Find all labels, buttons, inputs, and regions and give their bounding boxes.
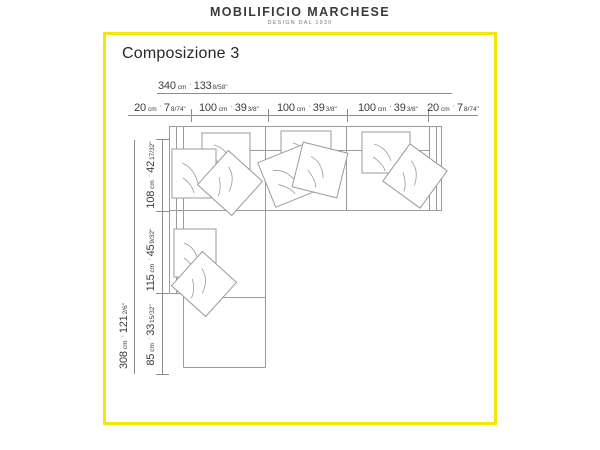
dim-total-depth: 308cm·1212/6" bbox=[117, 303, 131, 369]
dim-arm-right: 20cm·78/74" bbox=[427, 101, 479, 115]
dim-total-width: 340cm·1338/58" bbox=[158, 79, 228, 93]
dim-arm-left: 20cm·78/74" bbox=[134, 101, 186, 115]
dim-module-1: 100cm·393/8" bbox=[199, 101, 259, 115]
cushions bbox=[172, 131, 448, 316]
dim-depth-chaise: 85cm·3315/32" bbox=[144, 304, 158, 365]
dim-depth-corner: 115cm·459/32" bbox=[144, 229, 158, 292]
dim-module-2: 100cm·393/8" bbox=[277, 101, 337, 115]
dim-module-3: 100cm·393/8" bbox=[358, 101, 418, 115]
spec-sheet: MOBILIFICIO MARCHESE DESIGN DAL 1930 Com… bbox=[0, 0, 600, 450]
sofa-technical-drawing bbox=[0, 0, 600, 450]
dim-depth-sofa: 108cm·4217/32" bbox=[144, 141, 158, 208]
